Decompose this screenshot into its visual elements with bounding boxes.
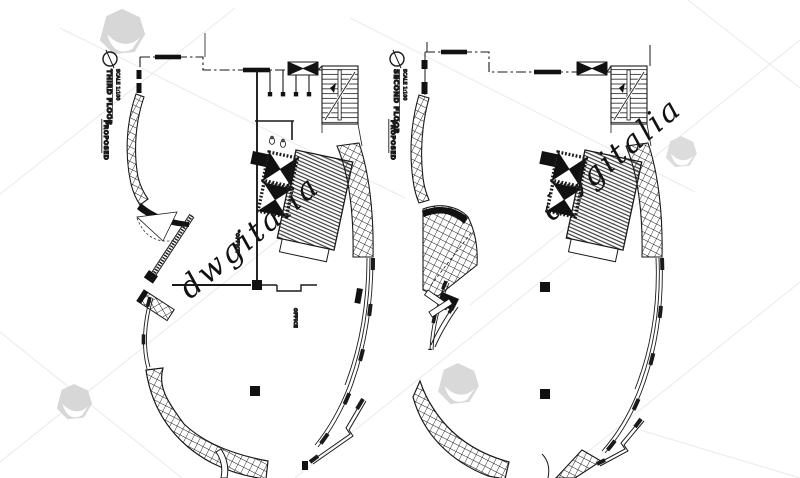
west-facade-hatch [411,95,429,203]
watermark-logo-icon [100,9,145,54]
watermark-logo-icon [666,136,697,167]
wall-node [252,280,262,290]
second-floor-title-block: SECOND FLOOR SCALE 1:100 PROPOSED [389,50,408,160]
third-floor-title-block: THIRD FLOOR SCALE 1:100 PROPOSED [102,50,121,160]
floor-plan-sheet: dwgitalia dwgitalia THIRD FLOOR SCALE 1:… [0,0,800,478]
plan-scale-label: SCALE 1:100 [115,69,121,101]
curtain-wall [315,258,373,447]
plan-title: THIRD FLOOR [105,69,113,126]
west-interior-features [137,203,194,321]
column [250,386,260,396]
room-label-office: OFFICE [292,308,298,328]
balcony-hatch [146,368,268,478]
column [540,389,550,399]
watermark-logo-icon [438,363,479,404]
room-label-office: OFFICE [234,233,240,253]
circulation-core [539,62,662,263]
drawing-canvas: dwgitalia dwgitalia THIRD FLOOR SCALE 1:… [0,0,800,478]
terrace-hatch [422,206,477,347]
plan-scale-label: SCALE 1:100 [402,69,408,101]
column [540,282,550,292]
watermark-logo-icon [57,384,92,419]
round-hall [143,258,373,478]
west-facade-hatch [127,94,148,205]
balcony-hatch [556,450,601,478]
plan-status-label: PROPOSED [102,120,109,160]
plan-status-label: PROPOSED [389,120,396,160]
